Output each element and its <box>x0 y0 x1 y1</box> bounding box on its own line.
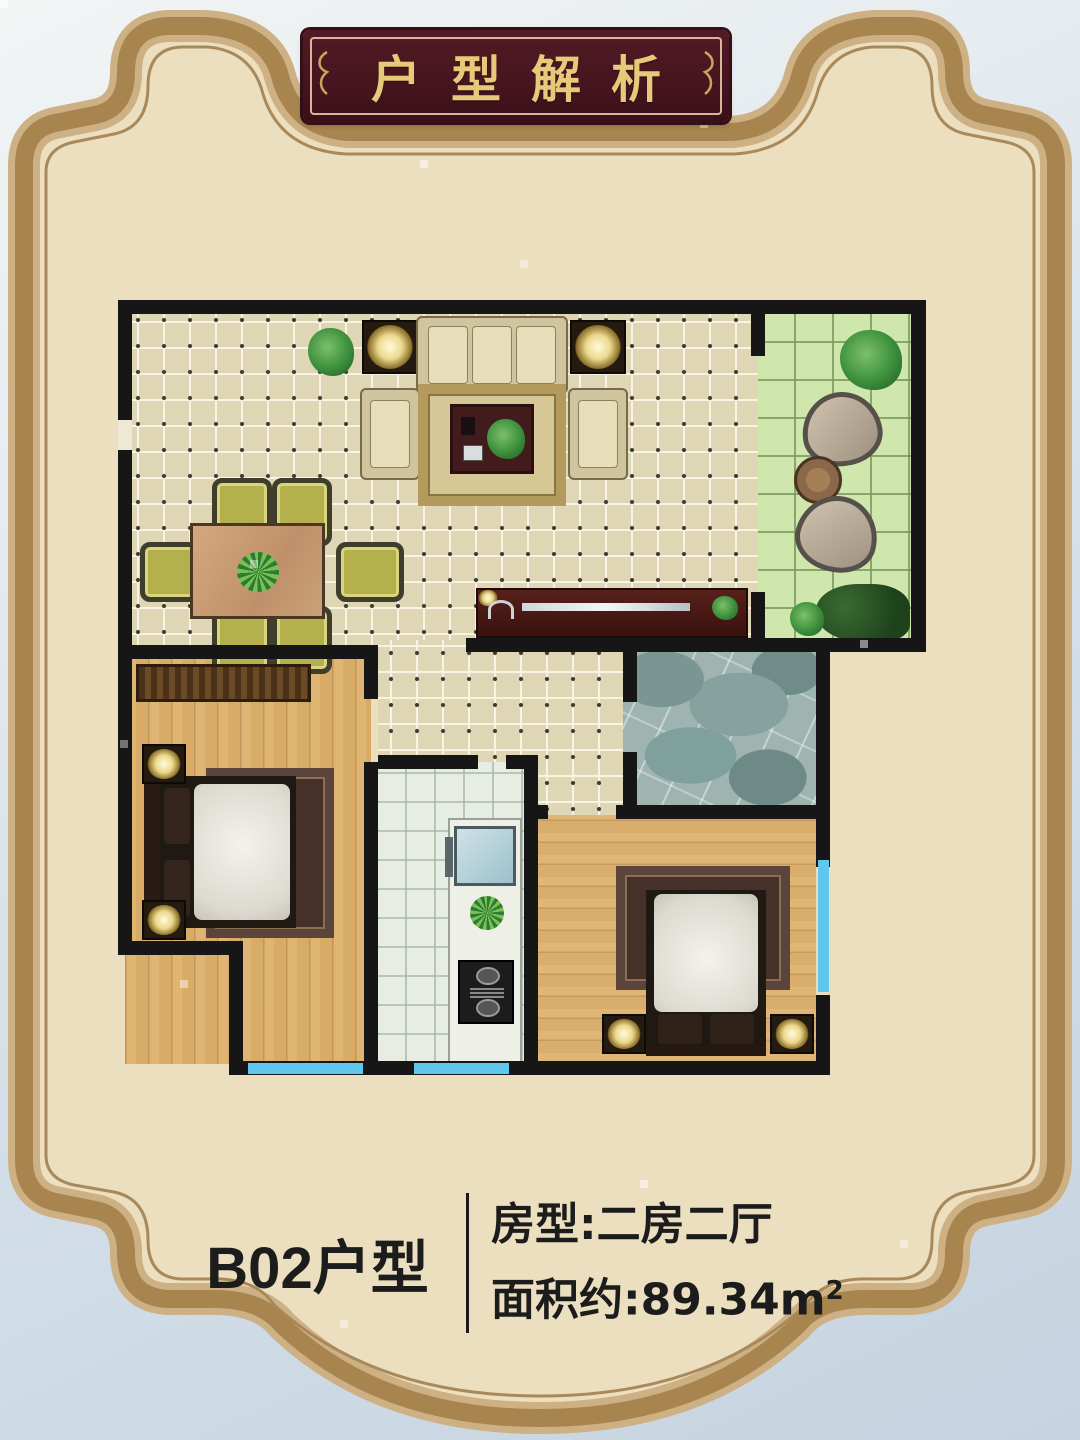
lamp-table-left <box>362 320 418 374</box>
wall-segment <box>506 755 524 769</box>
wall-segment <box>229 941 243 1075</box>
area-superscript: 2 <box>826 1276 844 1306</box>
wall-segment <box>118 300 926 314</box>
wall-segment <box>751 314 765 356</box>
coffee-table <box>450 404 534 474</box>
dining-set <box>140 478 406 664</box>
nightstand-lamp <box>142 900 186 940</box>
wall-segment <box>118 645 378 659</box>
wall-segment <box>751 592 765 638</box>
floor-plan <box>118 300 926 1088</box>
wall-segment <box>118 941 243 955</box>
nightstand-lamp <box>142 744 186 784</box>
sofa-cushion <box>370 400 410 468</box>
sink <box>454 826 516 886</box>
pillow <box>658 1014 702 1044</box>
wall-segment <box>378 755 478 769</box>
page-title: 户型解析 <box>303 30 729 122</box>
window <box>248 1063 363 1074</box>
burner-icon <box>476 999 500 1017</box>
duvet <box>194 784 290 920</box>
title-plaque: 户型解析 <box>303 30 729 122</box>
wall-segment <box>816 638 830 819</box>
bathroom <box>623 645 816 815</box>
dining-chair <box>336 542 404 602</box>
centerpiece-plant-icon <box>237 552 279 592</box>
wall-segment <box>538 1061 830 1075</box>
wall-segment <box>466 638 926 652</box>
armchair-right <box>568 388 628 480</box>
garden-tree-icon <box>840 330 902 390</box>
wall-segment <box>524 755 538 1061</box>
lamp-glow-icon <box>607 1019 641 1049</box>
sofa-cushion <box>428 326 468 384</box>
lamp-glow-icon <box>367 325 413 369</box>
divider <box>466 1193 469 1333</box>
nightstand-lamp <box>602 1014 646 1054</box>
unit-info: B02户型 房型:二房二厅 面积约:89.34m2 <box>175 1190 855 1336</box>
unit-label: B02户型 <box>175 1221 460 1305</box>
three-seat-sofa <box>416 316 568 394</box>
burner-icon <box>476 967 500 985</box>
wardrobe <box>136 664 311 702</box>
tv-icon <box>522 603 690 611</box>
nightstand-lamp <box>770 1014 814 1054</box>
wall-segment <box>364 659 378 699</box>
small-plant-icon <box>790 602 824 636</box>
flower-arrangement-icon <box>487 419 525 459</box>
double-bed <box>646 890 766 1056</box>
lamp-glow-icon <box>147 749 181 779</box>
armchair-left <box>360 388 420 480</box>
pillow <box>164 788 190 844</box>
grill-icon <box>470 988 504 998</box>
lamp-glow-icon <box>575 325 621 369</box>
sofa-cushion <box>472 326 512 384</box>
window <box>818 860 829 992</box>
faucet-icon <box>445 837 453 877</box>
tv-cabinet <box>476 588 748 638</box>
lamp-table-right <box>570 320 626 374</box>
specs: 房型:二房二厅 面积约:89.34m2 <box>491 1192 844 1334</box>
wall-opening <box>118 420 132 450</box>
table-item <box>463 445 483 461</box>
sofa-cushion <box>516 326 556 384</box>
window <box>414 1063 509 1074</box>
area-value: 面积约:89.34m <box>491 1275 826 1326</box>
table-item <box>461 417 475 435</box>
wall-segment <box>623 652 637 702</box>
lamp-glow-icon <box>775 1019 809 1049</box>
shrubs-icon <box>816 584 910 642</box>
room-type-text: 房型:二房二厅 <box>491 1192 844 1258</box>
dust-specks <box>0 0 8 8</box>
decor-item-icon <box>488 600 514 619</box>
wall-segment <box>118 300 132 955</box>
wall-segment <box>538 805 548 819</box>
flower-vase-icon <box>712 596 738 620</box>
wall-segment <box>911 300 926 652</box>
dining-table <box>190 523 325 619</box>
sofa-cushion <box>578 400 618 468</box>
wall-segment <box>616 805 830 819</box>
duvet <box>654 894 758 1012</box>
kitchen-plant-icon <box>470 896 504 930</box>
pillow <box>710 1014 754 1044</box>
lamp-glow-icon <box>147 905 181 935</box>
gas-stove <box>458 960 514 1024</box>
headboard <box>646 1046 766 1056</box>
wall-segment <box>364 762 378 1075</box>
area-text: 面积约:89.34m2 <box>491 1258 844 1334</box>
potted-plant-icon <box>308 328 354 376</box>
